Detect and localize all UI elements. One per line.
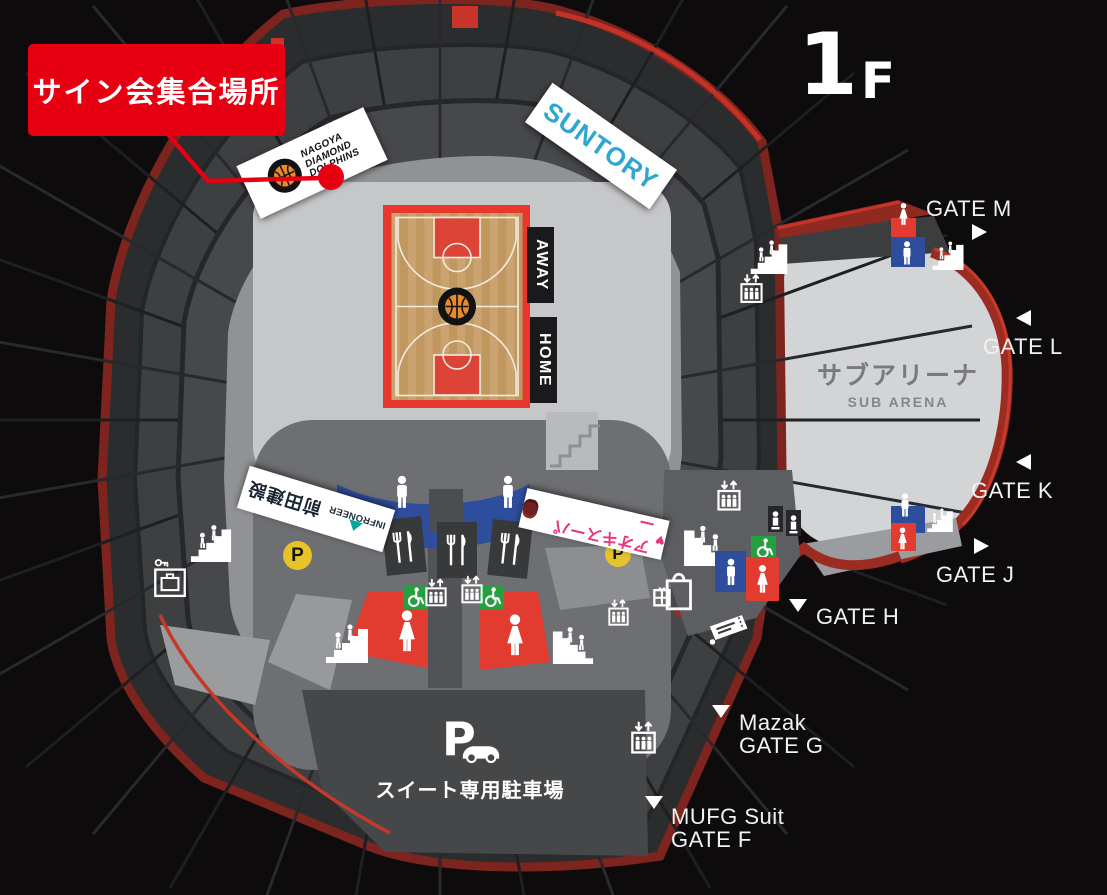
food-stalls bbox=[381, 516, 533, 579]
gate-j-label: GATE J bbox=[936, 562, 1014, 588]
court-side-steps bbox=[546, 412, 600, 470]
gate-k-arrow-icon bbox=[1016, 454, 1031, 470]
signing-event-callout: サイン会集合場所 bbox=[28, 44, 285, 136]
gate-h-arrow-icon bbox=[789, 599, 807, 612]
gate-l-label: GATE L bbox=[983, 334, 1063, 360]
home-bench-label: HOME bbox=[530, 317, 557, 403]
away-bench-label: AWAY bbox=[527, 227, 554, 303]
parking-marker: P bbox=[283, 541, 312, 570]
gate-f-arrow-icon bbox=[645, 796, 663, 809]
floor-number: 1 bbox=[798, 30, 858, 101]
gate-l-arrow-icon bbox=[1016, 310, 1031, 326]
gate-j-arrow-icon bbox=[974, 538, 989, 554]
gate-g-label: Mazak GATE G bbox=[739, 711, 824, 757]
floor-letter: F bbox=[861, 61, 895, 101]
basketball-court bbox=[383, 205, 530, 408]
floor-label: 1 F bbox=[798, 30, 895, 101]
arena-floor-map: 1 F サイン会集合場所 NAGOYA DIAMOND DOLPHINS SUN… bbox=[0, 0, 1107, 895]
gate-h-label: GATE H bbox=[816, 604, 899, 630]
sub-arena-label: サブアリーナ SUB ARENA bbox=[798, 356, 998, 410]
dolphins-banner-text: NAGOYA DIAMOND DOLPHINS bbox=[299, 128, 362, 180]
gate-m-arrow-icon bbox=[972, 224, 987, 240]
parking-p-symbol: P bbox=[442, 712, 476, 766]
court-center-logo bbox=[438, 288, 476, 326]
gate-f-label: MUFG Suit GATE F bbox=[671, 805, 784, 851]
signing-event-label: サイン会集合場所 bbox=[32, 69, 280, 111]
gate-k-label: GATE K bbox=[971, 478, 1053, 504]
aoki-mascot-icon bbox=[521, 498, 540, 520]
suite-parking-label: スイート専用駐車場 bbox=[320, 774, 620, 803]
gate-g-arrow-icon bbox=[712, 705, 730, 718]
gate-m-label: GATE M bbox=[926, 196, 1012, 222]
infroneer-logo-icon: INFRONEER bbox=[325, 503, 387, 539]
